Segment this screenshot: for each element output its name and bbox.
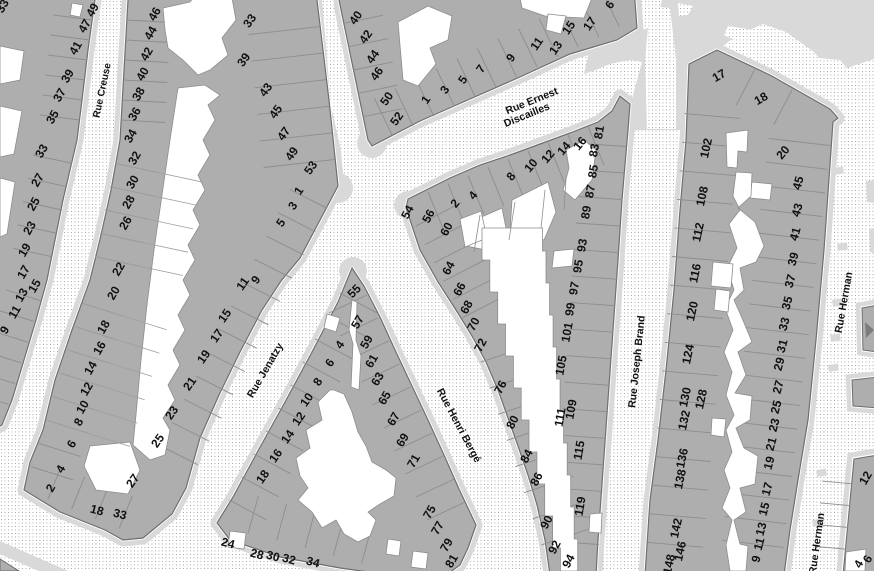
svg-text:85: 85 (585, 163, 601, 179)
svg-text:95: 95 (570, 258, 586, 274)
svg-text:93: 93 (574, 237, 590, 253)
svg-text:89: 89 (578, 204, 594, 220)
svg-text:97: 97 (566, 280, 582, 296)
svg-text:99: 99 (562, 301, 578, 317)
svg-text:83: 83 (586, 142, 602, 158)
svg-text:87: 87 (582, 183, 598, 199)
svg-text:81: 81 (591, 124, 607, 140)
